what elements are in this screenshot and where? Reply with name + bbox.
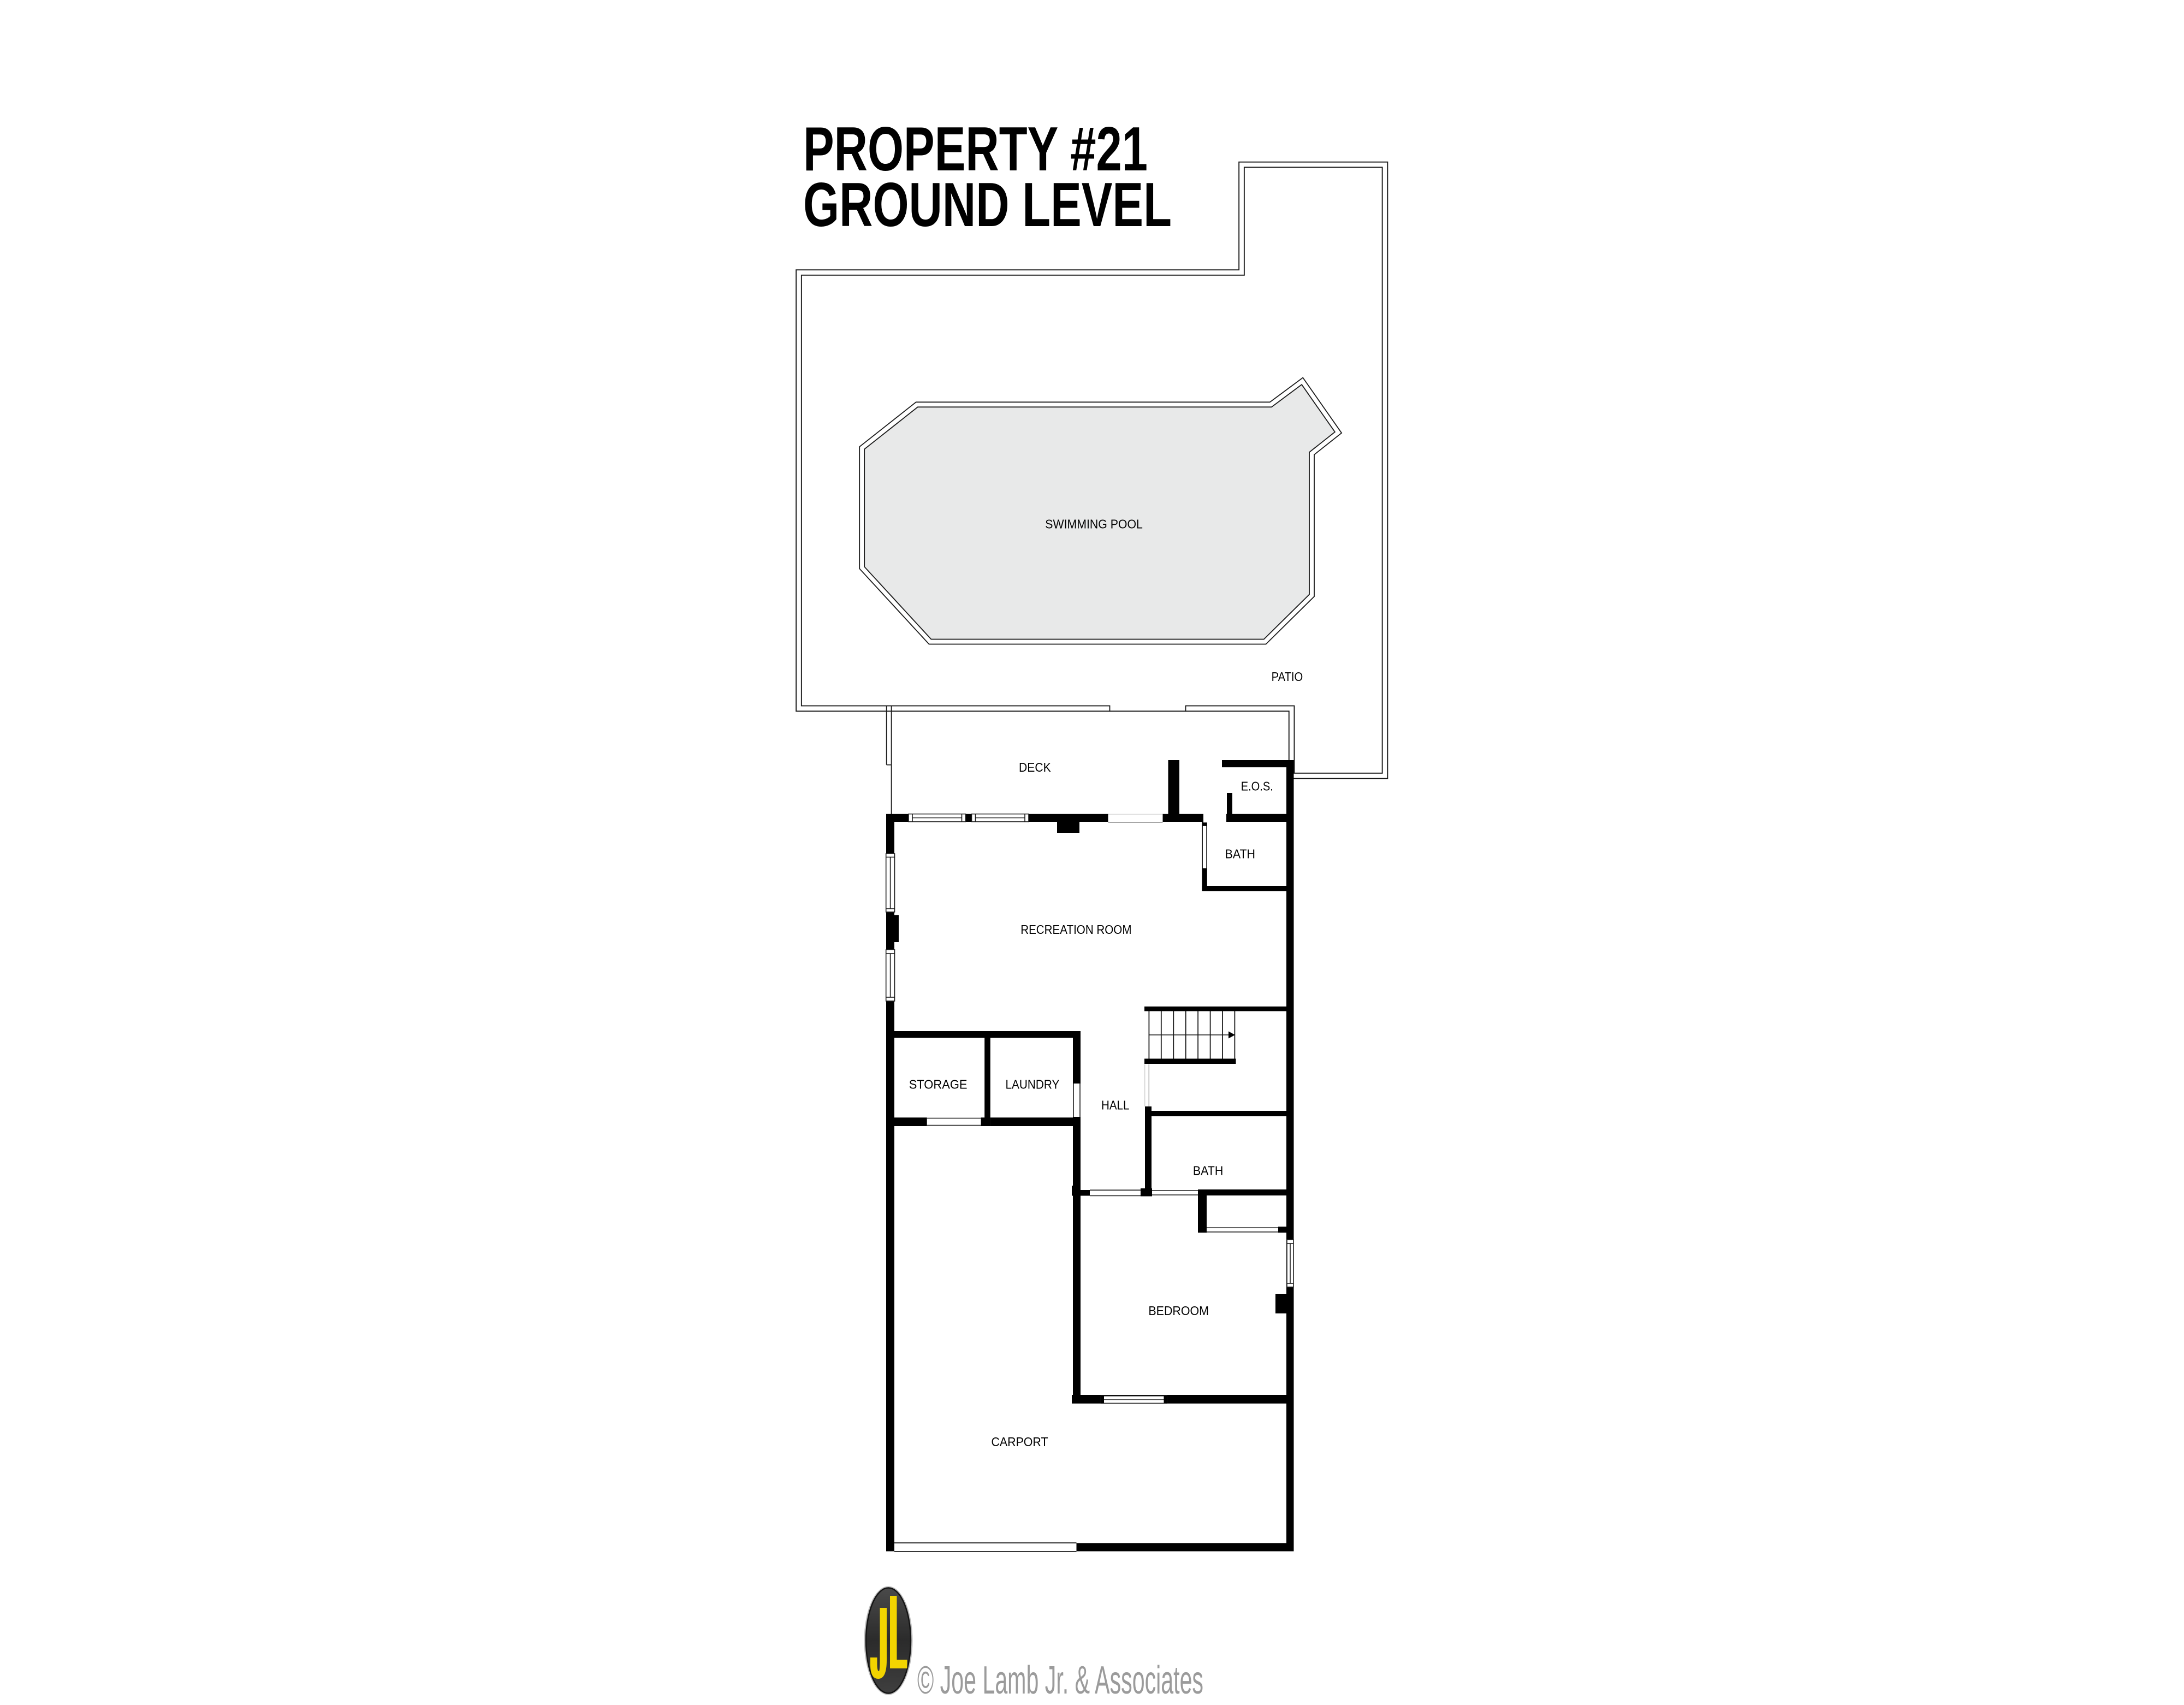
svg-text:BATH: BATH bbox=[1225, 847, 1255, 861]
svg-text:E.O.S.: E.O.S. bbox=[1241, 779, 1273, 794]
svg-text:GROUND LEVEL: GROUND LEVEL bbox=[803, 170, 1172, 240]
svg-text:BEDROOM: BEDROOM bbox=[1148, 1304, 1209, 1318]
svg-text:© Joe Lamb Jr. & Associates: © Joe Lamb Jr. & Associates bbox=[917, 1659, 1203, 1702]
svg-text:PATIO: PATIO bbox=[1272, 670, 1303, 684]
svg-text:SWIMMING POOL: SWIMMING POOL bbox=[1045, 517, 1143, 531]
svg-text:LAUNDRY: LAUNDRY bbox=[1006, 1078, 1060, 1092]
svg-text:HALL: HALL bbox=[1101, 1098, 1130, 1112]
svg-text:STORAGE: STORAGE bbox=[909, 1078, 968, 1092]
svg-text:RECREATION ROOM: RECREATION ROOM bbox=[1020, 922, 1131, 937]
svg-text:BATH: BATH bbox=[1193, 1163, 1223, 1177]
svg-text:DECK: DECK bbox=[1019, 760, 1051, 774]
svg-text:CARPORT: CARPORT bbox=[992, 1435, 1048, 1449]
